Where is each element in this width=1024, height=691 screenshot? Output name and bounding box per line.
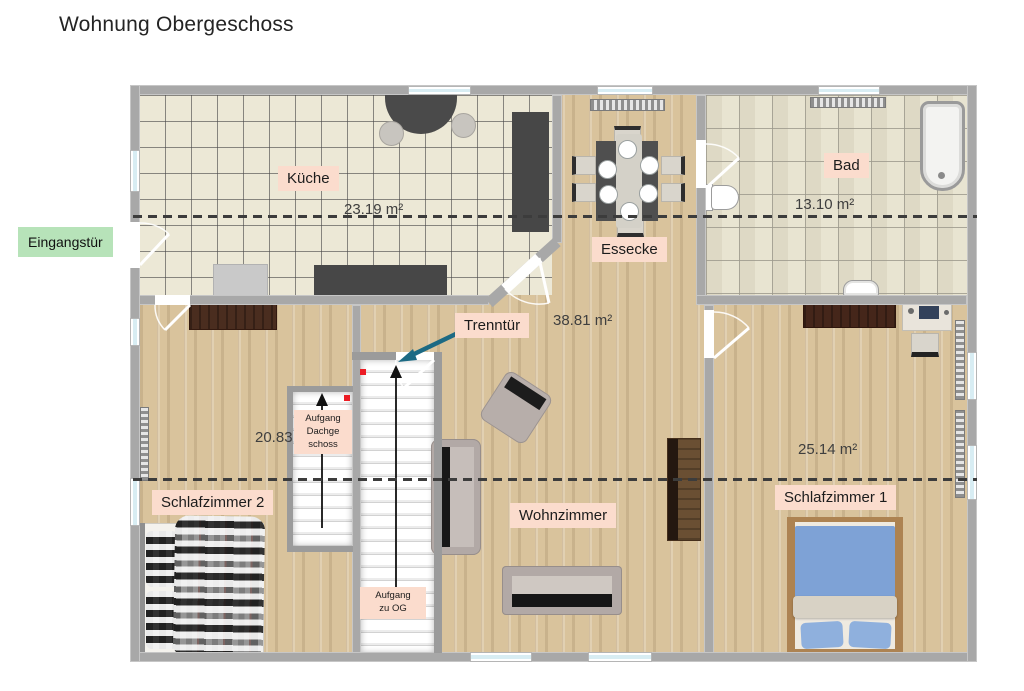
red-marker — [344, 395, 350, 401]
room-area-bath: 13.10 m² — [795, 196, 854, 213]
bedroom1-door-leaf — [714, 328, 749, 358]
room-label-bedroom2: Schlafzimmer 2 — [152, 490, 273, 515]
trenntuer-door-leaf — [404, 360, 434, 388]
red-marker — [360, 369, 366, 375]
entrance-door-arc — [140, 223, 169, 234]
room-label-kitchen: Küche — [278, 166, 339, 191]
trenntuer-pointer-arrow-icon — [410, 332, 460, 356]
stairs-attic-arrowhead-icon — [316, 393, 328, 406]
bedroom1-door-arc — [714, 312, 749, 328]
page-title: Wohnung Obergeschoss — [59, 13, 294, 37]
trenntuer-pointer-arrowhead-icon — [398, 349, 417, 362]
bedroom2-door-leaf — [165, 305, 190, 330]
kitchen-diagonal-door-arc — [505, 289, 549, 304]
room-area-bedroom2: 20.83 — [255, 429, 293, 446]
stairs-attic-label: Aufgang Dachge schoss — [294, 410, 352, 454]
stairs-og-label: Aufgang zu OG — [360, 587, 426, 619]
floor-plan-page: Wohnung Obergeschoss Eingangstür Küche 2… — [0, 0, 1024, 691]
room-label-bath: Bad — [824, 153, 869, 178]
room-label-dining: Essecke — [592, 237, 667, 262]
bath-door-leaf — [706, 158, 739, 188]
room-label-living: Wohnzimmer — [510, 503, 616, 528]
trenntuer-label: Trenntür — [455, 313, 529, 338]
dashed-line-upper — [133, 215, 977, 218]
room-area-kitchen: 23.19 m² — [344, 201, 403, 218]
overlay-graphics — [0, 0, 1024, 691]
room-area-living: 38.81 m² — [553, 312, 612, 329]
room-area-bedroom1: 25.14 m² — [798, 441, 857, 458]
bath-door-arc — [706, 144, 739, 158]
entrance-label: Eingangstür — [18, 227, 113, 257]
room-label-bedroom1: Schlafzimmer 1 — [775, 485, 896, 510]
kitchen-diagonal-door-leaf — [539, 258, 549, 303]
stairs-og-arrowhead-icon — [390, 365, 402, 378]
dashed-line-lower — [133, 478, 977, 481]
kitchen-diagonal-door-gap — [505, 258, 539, 289]
bedroom2-door-arc — [155, 305, 165, 330]
entrance-door-leaf — [140, 234, 169, 265]
